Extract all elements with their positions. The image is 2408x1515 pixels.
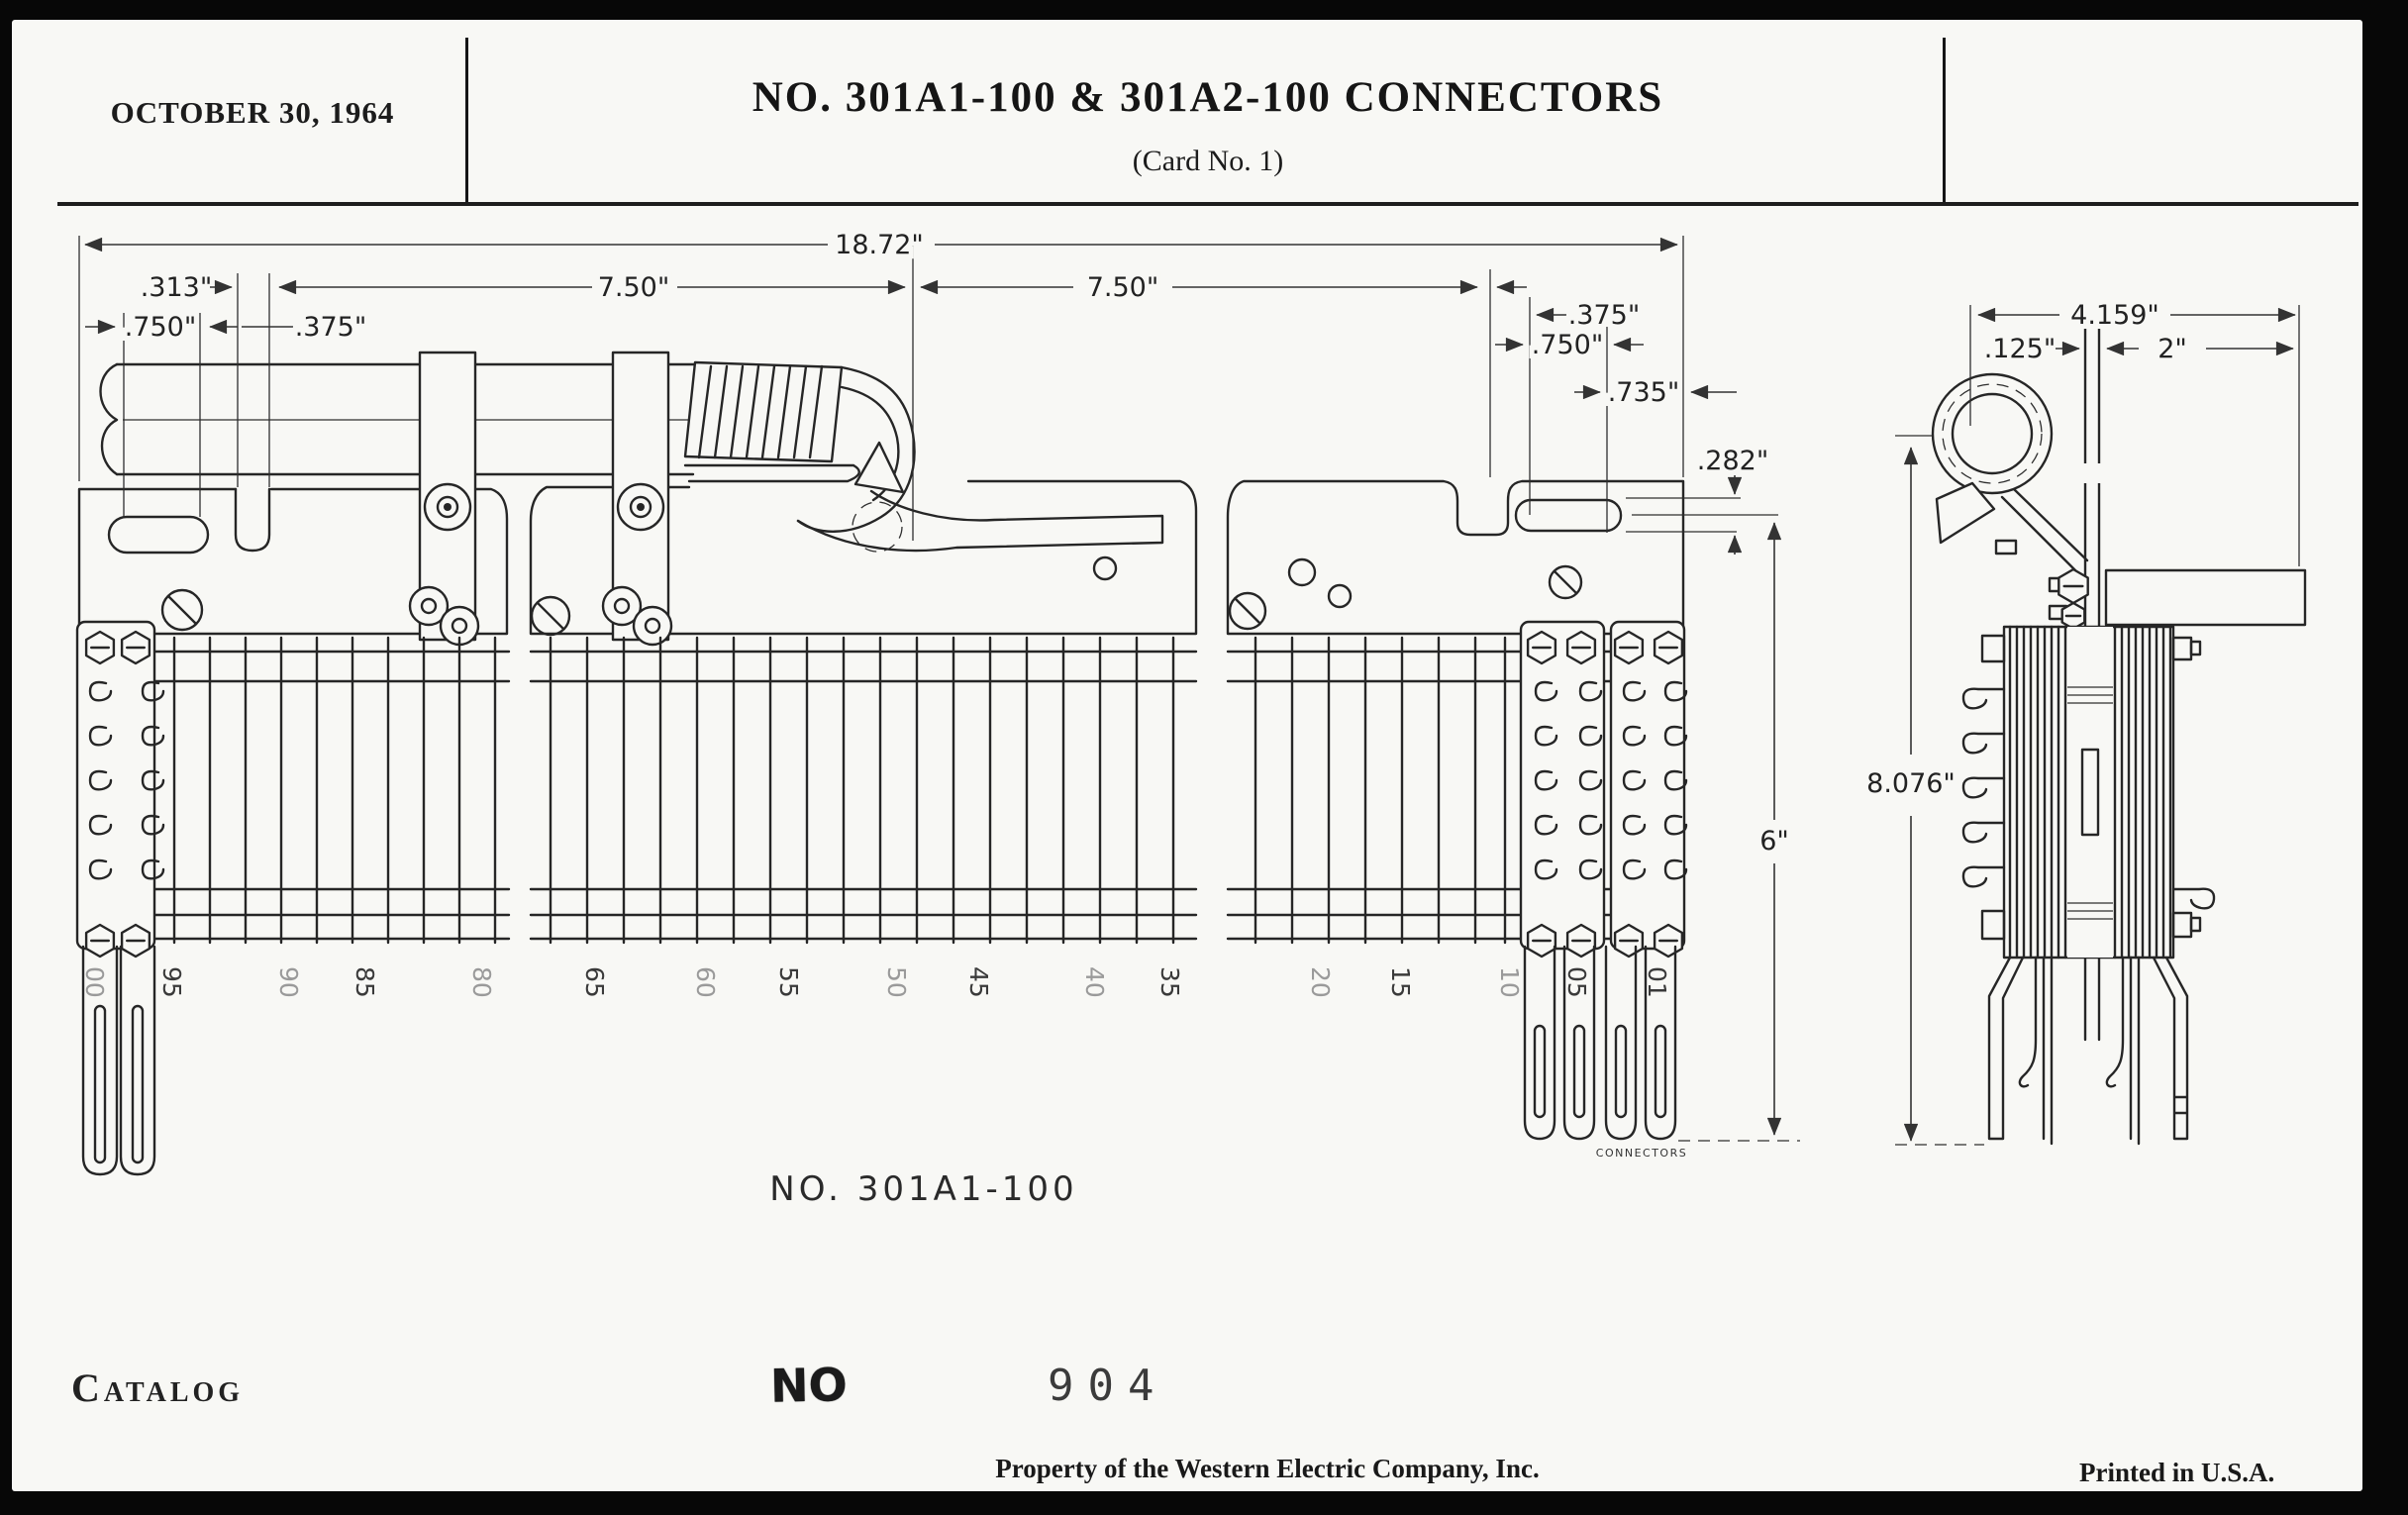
catalog-label: Catalog	[71, 1364, 244, 1411]
header-divider-left	[465, 38, 468, 204]
header-rule	[57, 202, 2358, 206]
footer-printed-line: Printed in U.S.A.	[2079, 1458, 2274, 1488]
scanned-catalog-card: { "header": { "date": "OCTOBER 30, 1964"…	[0, 0, 2408, 1515]
card-subtitle: (Card No. 1)	[475, 145, 1941, 178]
header-date: OCTOBER 30, 1964	[59, 95, 446, 131]
catalog-no-stamp: NO	[769, 1358, 848, 1413]
paper-card	[12, 20, 2362, 1491]
page-title: NO. 301A1-100 & 301A2-100 CONNECTORS	[475, 73, 1941, 122]
catalog-number-stamp: 904	[1048, 1361, 1167, 1411]
footer-property-line: Property of the Western Electric Company…	[871, 1454, 1663, 1484]
header-divider-right	[1943, 38, 1946, 204]
